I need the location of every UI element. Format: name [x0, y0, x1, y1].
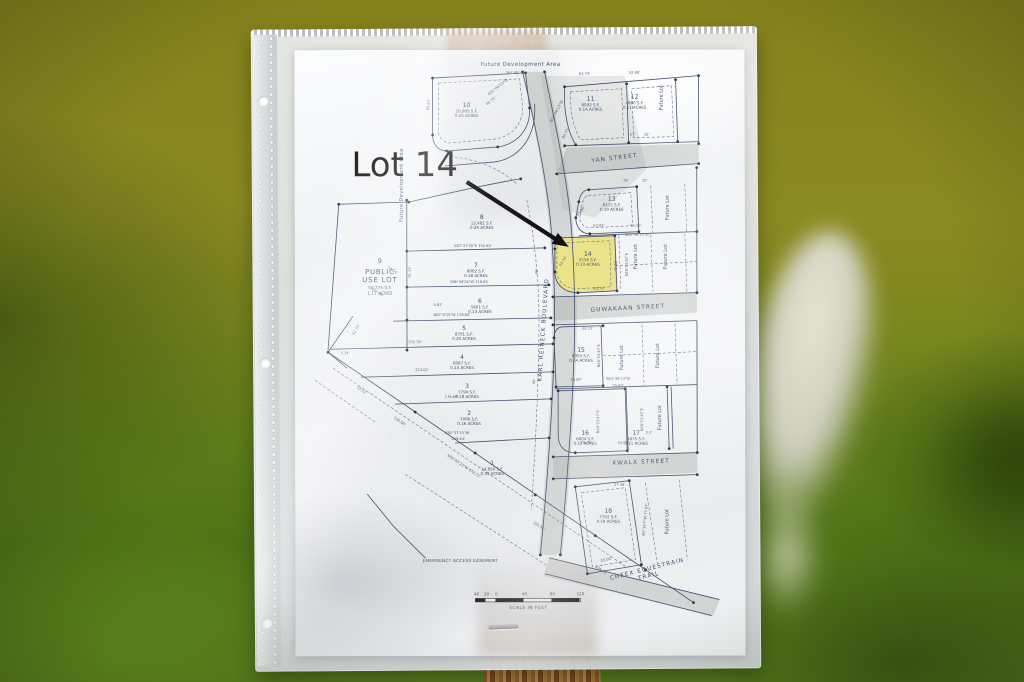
lot-acres: 0.25 ACRES — [455, 113, 479, 118]
lot14-annotation: Lot 14 — [351, 145, 458, 185]
lot-acres: 0.13 ACRES — [468, 309, 492, 314]
scale-tick: 40 — [522, 591, 528, 596]
easement-label: EMERGENCY ACCESS EASEMENT — [422, 558, 498, 563]
future-lot-label: Future Lot — [657, 405, 663, 430]
dimension-label: N26°21'47"E — [640, 407, 644, 431]
dimension-label: 74.09' — [570, 378, 581, 382]
scale-caption: SCALE IN FEET — [509, 605, 548, 610]
scale-tick: 120 — [577, 591, 585, 596]
dimension-label: 139.44' — [451, 437, 465, 441]
dimension-label: 53.93' — [593, 224, 604, 228]
dimension-label: 78' — [623, 179, 629, 183]
dimension-label: N26°21'47"E — [625, 252, 629, 276]
dimension-label: N87°0'15"W 178.04' — [434, 313, 471, 317]
dimension-label: 57.38 — [614, 483, 625, 487]
future-lot-label: Future Lot — [665, 195, 671, 220]
dimension-label: 55.03' — [618, 441, 629, 445]
lot-acres: 0.14 ACRES — [579, 107, 603, 112]
sheet-protector: Future Development AreaFuture Developmen… — [251, 26, 761, 672]
dimension-label: 63.74' — [579, 72, 590, 76]
dimension-label: 52.74' — [352, 324, 361, 336]
dimension-label: N87°27'35"E 152.92' — [454, 244, 492, 248]
lot-acres: 0.16 ACRES — [457, 421, 481, 426]
lot14-arrow: Lot 14 — [351, 145, 568, 247]
punch-hole — [262, 618, 273, 629]
dimension-label: 45.75' — [593, 287, 604, 291]
dimension-label: N26°21'47"E — [597, 343, 601, 367]
dimension-label: S81°37'15"W — [445, 431, 469, 435]
dimension-label: 78.76' — [581, 441, 592, 445]
street-name: KARL REINECK BOULEVARD — [537, 278, 550, 382]
blurred-background-post-lower — [752, 490, 822, 620]
dimension-label: S63°36'13"W — [606, 377, 630, 381]
dimension-label: 55.50' — [630, 224, 641, 228]
lot-acres: 0.20 ACRES — [452, 336, 476, 341]
scale-bar — [475, 598, 580, 602]
dimension-label: 135.06' — [393, 416, 407, 427]
scale-tick: 40 — [474, 591, 480, 596]
sleeve-binding-strip — [253, 35, 281, 667]
dimension-label: 15' — [642, 179, 648, 183]
scale-tick: 80 — [550, 591, 556, 596]
plat-map-drawing: Future Development AreaFuture Developmen… — [294, 50, 745, 651]
dimension-label: 57' — [630, 133, 636, 137]
dimension-label: 9.87' — [433, 303, 442, 307]
dimension-label: S63°38'13"W — [625, 233, 649, 237]
lot-acres: 0.18 ACRES — [597, 519, 621, 524]
future-lot-label: Future Lot — [664, 509, 670, 534]
dimension-label: 2.5' — [646, 431, 653, 435]
scale-tick: 0 — [495, 591, 498, 596]
lot-acres: 0.18 ACRES — [455, 394, 479, 399]
lot-acres: 0.14 ACRES — [569, 358, 593, 363]
dimension-label: 53.52' — [356, 386, 368, 396]
punch-hole — [260, 358, 271, 369]
dimension-label: 40' — [534, 269, 539, 275]
dimension-label: 91.13' — [408, 266, 413, 277]
dimension-label: 213.02' — [415, 368, 429, 372]
dimension-label: 62.71' — [582, 327, 593, 331]
future-lot-label: Future Lot — [659, 85, 665, 110]
blurred-dark-patch — [920, 380, 1024, 550]
dimension-label: 15' — [644, 133, 650, 137]
dimension-label: 55.57' — [426, 99, 432, 111]
future-lot-label: Future Lot — [663, 244, 669, 269]
photo-scene: Future Development AreaFuture Developmen… — [0, 0, 1024, 682]
dimension-label: 49.35' — [614, 260, 618, 271]
dimension-label: N7°34'7"W 77.97' — [642, 503, 649, 535]
lot-number: 9 — [378, 257, 382, 265]
future-development-area-title: Future Development Area — [481, 62, 561, 68]
punch-hole — [258, 96, 269, 107]
lot-acres: 0.19 ACRES — [600, 207, 624, 212]
lot-acres: 0.11 ACRES — [623, 105, 647, 110]
plat-map-paper: Future Development AreaFuture Developmen… — [294, 50, 745, 657]
future-lot-label: Future Lot — [619, 345, 625, 370]
lot-acres: 0.18 ACRES — [464, 273, 488, 278]
scale-tick: 20 — [484, 591, 490, 596]
dimension-label: N50°43'23"W 478.72' — [446, 454, 481, 479]
dimension-label: 176.68 — [445, 395, 458, 399]
dimension-label: 55.06' — [600, 557, 612, 563]
dimension-label: N26°21'47"E — [596, 409, 600, 433]
future-lot-label: Future Lot — [655, 343, 661, 368]
dimension-label: 252.76' — [408, 340, 422, 344]
lot-acres: 0.34 ACRES — [480, 471, 504, 476]
dimension-label: 55.00' — [612, 384, 623, 388]
dimension-label: 85.75' — [485, 96, 496, 106]
dimension-label: S86°44'26"W 118.05 — [450, 280, 488, 284]
lot-acres: 0.29 ACRES — [470, 225, 494, 230]
dimension-label: 3.34' — [341, 351, 350, 355]
dimension-label: 52.90' — [629, 71, 640, 75]
lot-acres: 0.13 ACRES — [576, 262, 600, 267]
lot-acres: 0.14 ACRES — [450, 365, 474, 370]
future-lot-label: Future Lot — [633, 244, 639, 269]
dimension-label: 167.90' — [506, 71, 520, 75]
public-use-lot-label: USE LOT — [362, 276, 397, 284]
dimension-label: 40' — [532, 379, 537, 385]
